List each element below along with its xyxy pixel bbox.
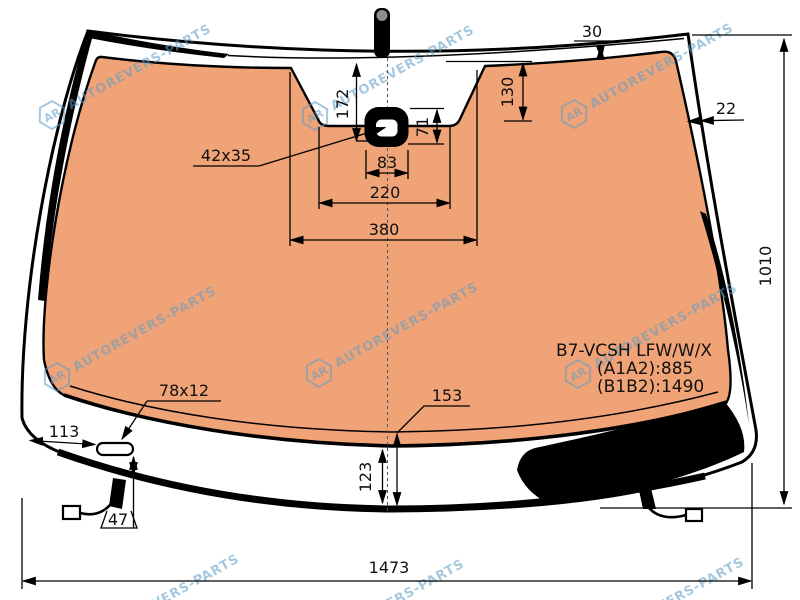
right-connector [686, 509, 702, 521]
dim-label-30: 30 [582, 22, 602, 41]
part-code: B7-VCSH LFW/W/X [556, 341, 712, 361]
dim-label-113: 113 [49, 422, 80, 441]
dim-label-22: 22 [716, 99, 736, 118]
diagram-canvas: AR AUTOREVERS-PARTS AR AUTOREVERS-PARTS … [0, 0, 800, 600]
dim-label-172: 172 [333, 89, 352, 120]
dim-label-153: 153 [432, 386, 463, 405]
dim-label-78x12: 78x12 [159, 381, 209, 400]
watermark: AR AUTOREVERS-PARTS [62, 547, 244, 600]
windshield-diagram: AR AUTOREVERS-PARTS AR AUTOREVERS-PARTS … [0, 0, 800, 600]
right-wire [649, 508, 686, 517]
watermark-text: AUTOREVERS-PARTS [761, 562, 800, 600]
dim-label-380: 380 [369, 220, 400, 239]
dim-label-71: 71 [413, 117, 432, 137]
watermark-text: AUTOREVERS-PARTS [598, 555, 747, 600]
dim-label-130: 130 [498, 77, 517, 108]
dim-label-1473: 1473 [369, 558, 410, 577]
dim-label-123: 123 [356, 462, 375, 493]
watermark-text: AUTOREVERS-PARTS [93, 552, 242, 600]
moulding-strip [97, 443, 133, 455]
dim-30-arrow-down [601, 53, 602, 59]
dim-label-83: 83 [377, 153, 397, 172]
part-dim-b: (B1B2):1490 [597, 377, 704, 397]
sensor-hole [376, 120, 398, 137]
part-dim-a: (A1A2):885 [597, 359, 693, 379]
left-wiper-post [109, 478, 126, 509]
dim-label-220: 220 [370, 183, 401, 202]
left-connector [63, 506, 80, 519]
dim-22-underline [701, 120, 744, 121]
dim-label-47: 47 [108, 510, 128, 529]
antenna-tip [377, 10, 388, 21]
dim-label-42x35: 42x35 [201, 146, 251, 165]
dim-label-1010: 1010 [756, 246, 775, 287]
watermark: AR AUTOREVERS-PARTS [567, 550, 749, 600]
dim-22-arrow [688, 121, 699, 122]
